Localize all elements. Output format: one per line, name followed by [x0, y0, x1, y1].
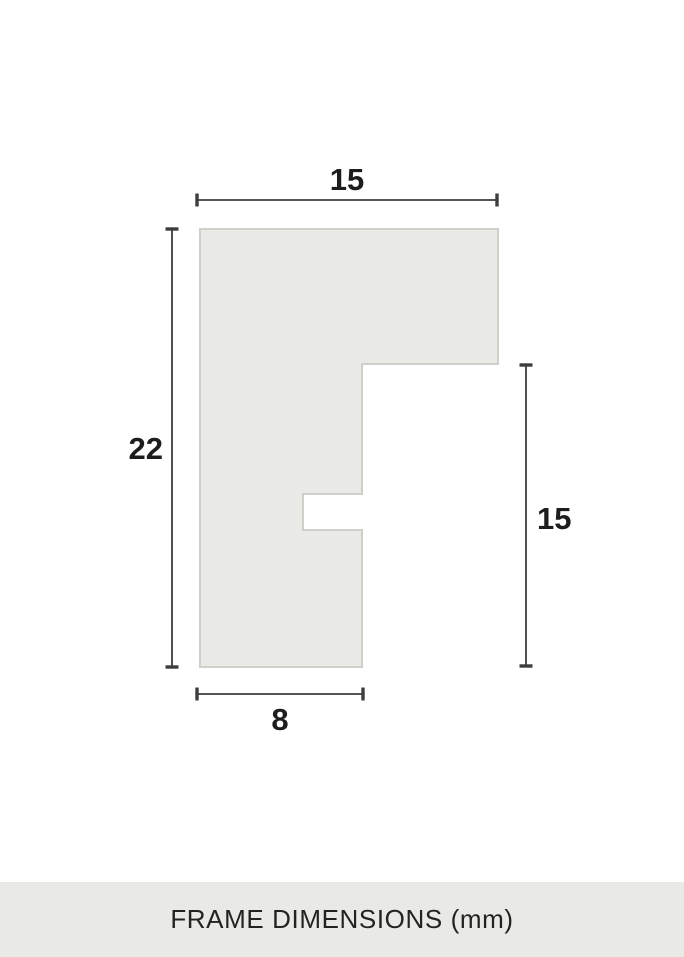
frame-profile-shape [200, 229, 498, 667]
top-dimension-label: 15 [330, 162, 364, 197]
footer-label: FRAME DIMENSIONS (mm) [170, 904, 513, 935]
right-dimension [520, 365, 533, 666]
frame-profile-diagram: 15 22 15 8 [0, 0, 684, 882]
page: 15 22 15 8 FRAME DIMENSIONS (mm) [0, 0, 684, 957]
left-dimension-label: 22 [129, 431, 163, 466]
bottom-dimension-label: 8 [271, 702, 288, 737]
bottom-dimension [197, 688, 363, 701]
footer-bar: FRAME DIMENSIONS (mm) [0, 882, 684, 957]
right-dimension-label: 15 [537, 501, 571, 536]
left-dimension [166, 229, 179, 667]
